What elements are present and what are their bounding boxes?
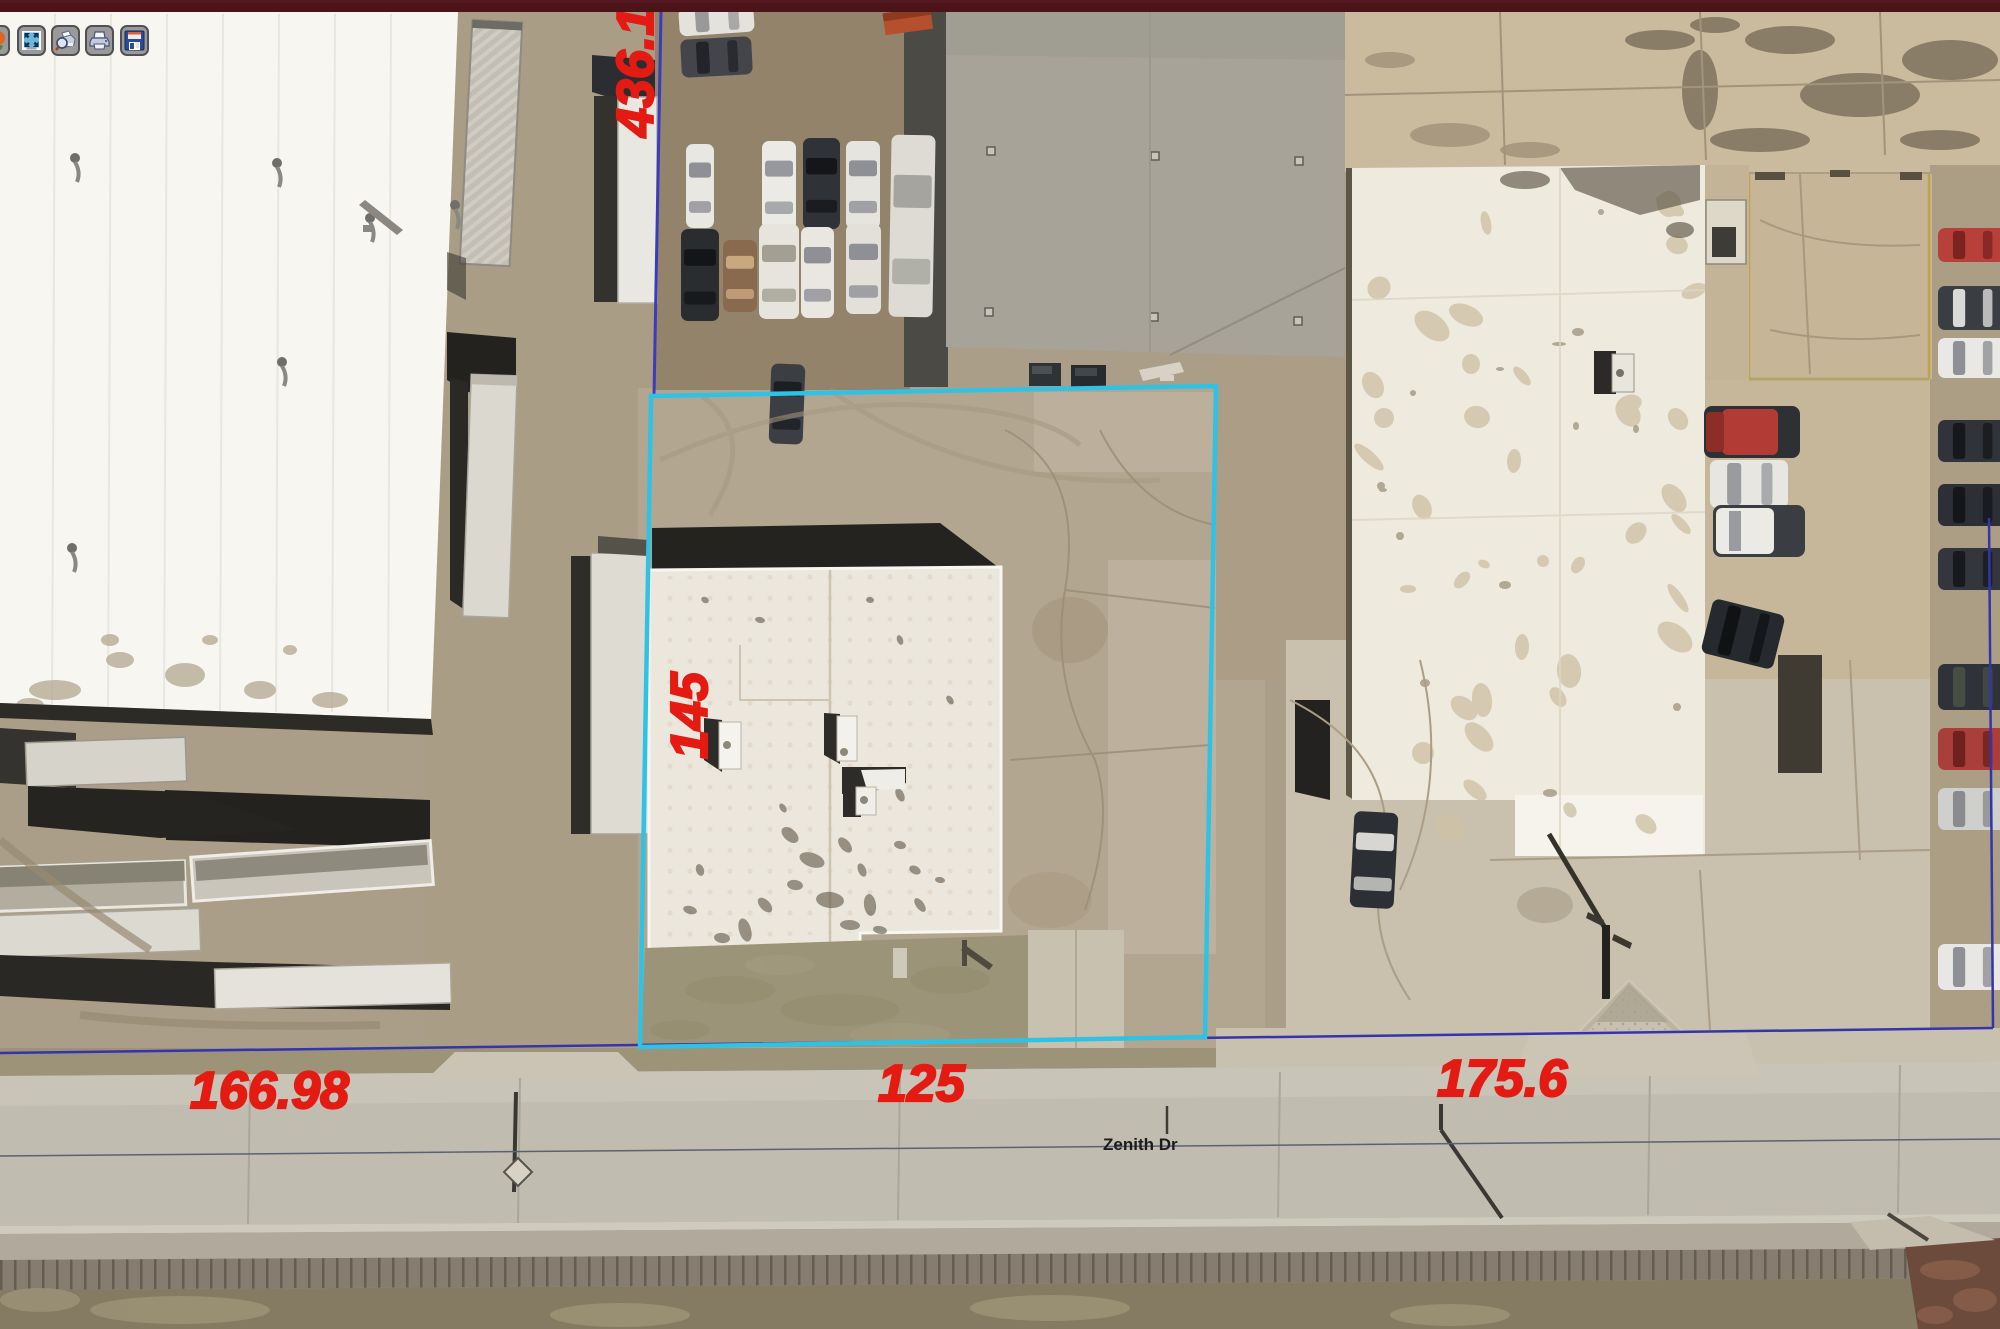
svg-text:166.98: 166.98 (190, 1062, 349, 1120)
svg-text:436.1: 436.1 (607, 7, 665, 138)
svg-text:175.6: 175.6 (1437, 1050, 1568, 1108)
svg-text:Zenith Dr: Zenith Dr (1103, 1135, 1178, 1154)
svg-text:145: 145 (661, 671, 719, 759)
svg-text:125: 125 (878, 1055, 966, 1113)
